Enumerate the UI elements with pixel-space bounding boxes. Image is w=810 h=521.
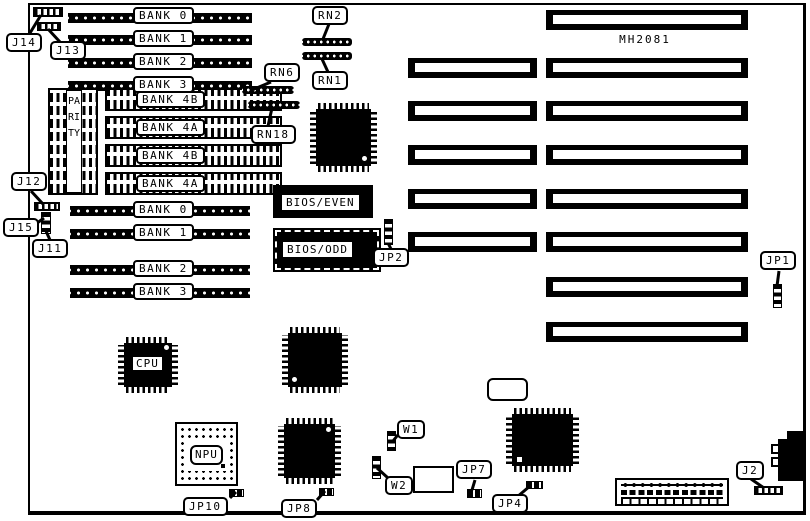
j11-j15-connector [41, 212, 51, 234]
jp4-connector [526, 481, 543, 489]
bank4-row-0-label: BANK 4B [136, 91, 205, 108]
expansion-slot-long-2 [546, 58, 748, 78]
board-id-text: MH2081 [600, 33, 690, 46]
pin1-dot [164, 345, 169, 350]
pin1-dot [517, 457, 522, 462]
expansion-slot-long-1 [546, 10, 748, 30]
expansion-slot-long-4 [546, 145, 748, 165]
rn18-label: RN18 [251, 125, 296, 144]
bank-top-2-label: BANK 2 [133, 53, 194, 70]
jp7-connector [467, 489, 482, 498]
expansion-slot-long-8 [546, 322, 748, 342]
expansion-slot-short-5 [408, 232, 537, 252]
expansion-slot-long-3 [546, 101, 748, 121]
bank-top-0-label: BANK 0 [133, 7, 194, 24]
power-dash-row [621, 490, 723, 495]
w2-label: W2 [385, 476, 413, 495]
cpu-label: CPU [131, 355, 164, 372]
bank-mid-1-label: BANK 1 [133, 224, 194, 241]
rn2-label: RN2 [312, 6, 348, 25]
crystal-oscillator [487, 378, 528, 401]
expansion-slot-short-3 [408, 145, 537, 165]
j14-label: J14 [6, 33, 42, 52]
jp1-jumper [773, 284, 782, 308]
j2-label: J2 [736, 461, 764, 480]
j13-connector [37, 22, 61, 31]
j14-connector [33, 7, 63, 17]
npu-label: NPU [190, 445, 223, 465]
qfp-chip-4 [506, 408, 579, 472]
jp2-jumper [384, 219, 393, 245]
expansion-slot-long-6 [546, 232, 748, 252]
cpu-chip: CPU [118, 337, 178, 393]
j11-label: J11 [32, 239, 68, 258]
expansion-slot-long-5 [546, 189, 748, 209]
jp2-label: JP2 [373, 248, 409, 267]
jp4-label: JP4 [492, 494, 528, 513]
jp10-label: JP10 [183, 497, 228, 516]
rn6-sip [242, 86, 294, 94]
j12-connector [34, 202, 60, 211]
rn6-label: RN6 [264, 63, 300, 82]
power-connector [615, 478, 729, 506]
pin1-dot [362, 156, 367, 161]
bank-mid-3-label: BANK 3 [133, 283, 194, 300]
j12-label: J12 [11, 172, 47, 191]
rn18-sip [248, 101, 300, 109]
rn1-sip [302, 52, 352, 60]
empty-socket [413, 466, 454, 493]
power-pins-row [621, 482, 723, 488]
motherboard-diagram: J14 J13 BANK 0 BANK 1 BANK 2 BANK 3 PARI… [0, 0, 810, 521]
bios-odd-label: BIOS/ODD [281, 240, 354, 259]
w2-jumper [372, 456, 381, 479]
pin1-dot [292, 377, 297, 382]
parity-label: PARITY [66, 90, 82, 193]
bank4-row-2-label: BANK 4B [136, 147, 205, 164]
jp7-label: JP7 [456, 460, 492, 479]
qfp-chip-3 [278, 418, 341, 484]
jp8-connector [319, 488, 334, 496]
j13-label: J13 [50, 41, 86, 60]
keyboard-connector-tab [771, 444, 780, 454]
expansion-slot-long-7 [546, 277, 748, 297]
bank-mid-0-label: BANK 0 [133, 201, 194, 218]
keyboard-connector-tab [771, 457, 780, 467]
bank4-row-1-label: BANK 4A [136, 119, 205, 136]
rn2-sip [302, 38, 352, 46]
keyboard-connector [778, 439, 806, 481]
j2-connector [754, 486, 783, 495]
pin1-dot [221, 464, 225, 468]
bank4-row-3-label: BANK 4A [136, 175, 205, 192]
rn1-label: RN1 [312, 71, 348, 90]
bank-top-1-label: BANK 1 [133, 30, 194, 47]
jp10-connector [229, 489, 244, 497]
bios-even-label: BIOS/EVEN [280, 193, 361, 212]
w1-label: W1 [397, 420, 425, 439]
qfp-chip-1 [310, 103, 377, 172]
w1-jumper [387, 431, 396, 451]
bank-mid-2-label: BANK 2 [133, 260, 194, 277]
jp1-label: JP1 [760, 251, 796, 270]
jp8-label: JP8 [281, 499, 317, 518]
expansion-slot-short-4 [408, 189, 537, 209]
power-cells-row [621, 497, 723, 506]
pin1-dot [326, 427, 331, 432]
expansion-slot-short-1 [408, 58, 537, 78]
npu-socket: NPU [175, 422, 238, 486]
j15-label: J15 [3, 218, 39, 237]
expansion-slot-short-2 [408, 101, 537, 121]
qfp-chip-2 [282, 327, 348, 393]
